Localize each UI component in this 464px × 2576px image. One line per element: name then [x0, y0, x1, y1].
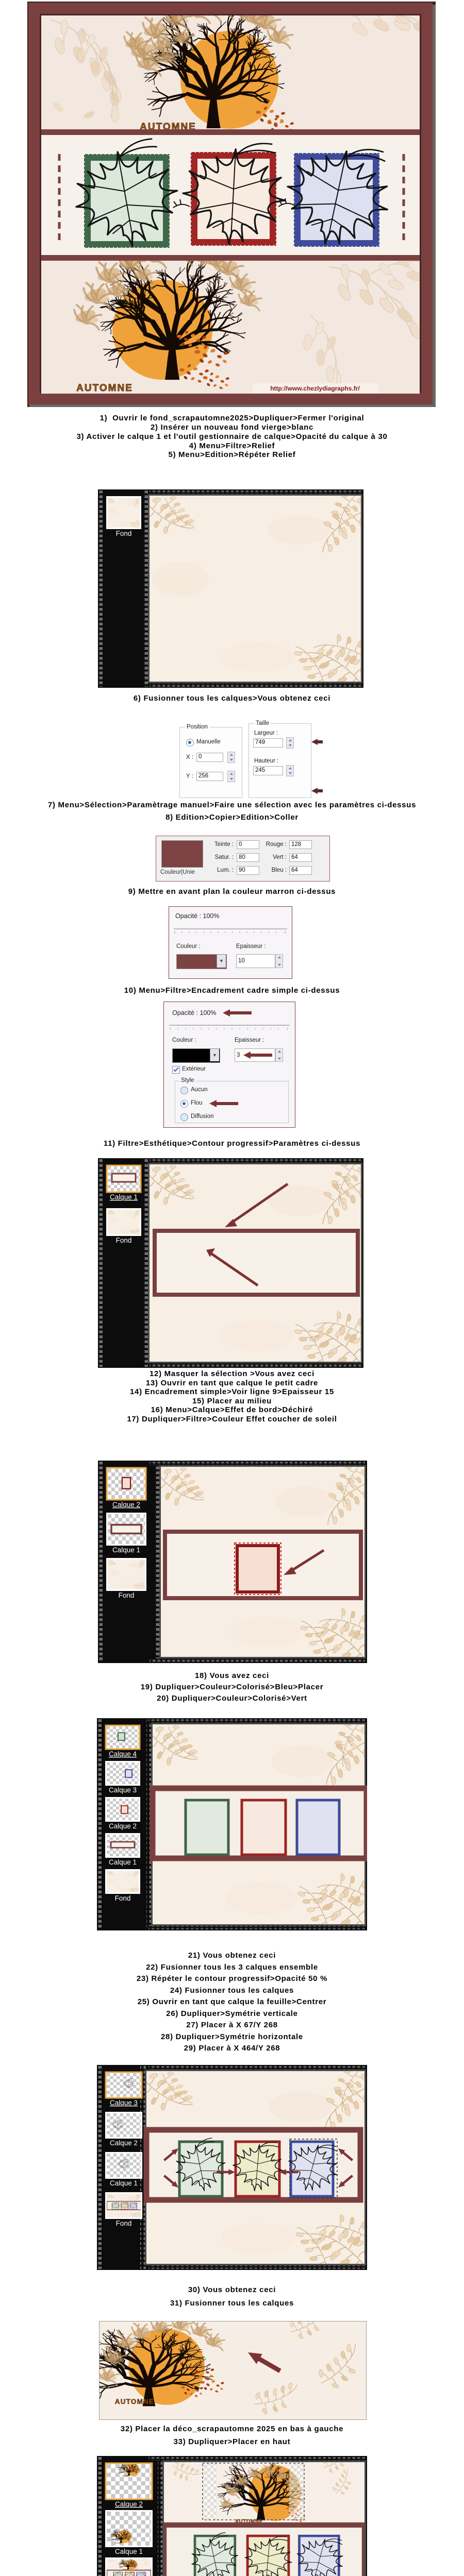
svg-text:Fond: Fond	[119, 1591, 135, 1599]
svg-text:http://www.chezlydiagraphs.fr/: http://www.chezlydiagraphs.fr/	[270, 385, 360, 392]
svg-text:AUTOMNE: AUTOMNE	[76, 383, 133, 394]
svg-text:Calque 4: Calque 4	[109, 1750, 137, 1758]
svg-text:Calque 1: Calque 1	[110, 1193, 138, 1201]
svg-text:Calque 1: Calque 1	[112, 1546, 140, 1554]
svg-text:Calque 1: Calque 1	[115, 2548, 143, 2555]
svg-text:AUTOMNE: AUTOMNE	[115, 2398, 154, 2405]
svg-text:Calque 2: Calque 2	[109, 1822, 137, 1830]
svg-text:Calque 2: Calque 2	[115, 2500, 143, 2508]
svg-text:Fond: Fond	[116, 2219, 132, 2227]
svg-text:Calque 2: Calque 2	[112, 1501, 140, 1509]
svg-text:Calque 2: Calque 2	[110, 2139, 138, 2147]
svg-text:Calque 3: Calque 3	[109, 1786, 137, 1794]
svg-text:Calque 3: Calque 3	[110, 2099, 138, 2107]
svg-text:Calque 1: Calque 1	[109, 1858, 137, 1866]
svg-text:Fond: Fond	[116, 530, 132, 537]
svg-text:Fond: Fond	[116, 1236, 132, 1244]
svg-text:Calque 1: Calque 1	[110, 2179, 138, 2187]
svg-text:Fond: Fond	[115, 1894, 131, 1902]
